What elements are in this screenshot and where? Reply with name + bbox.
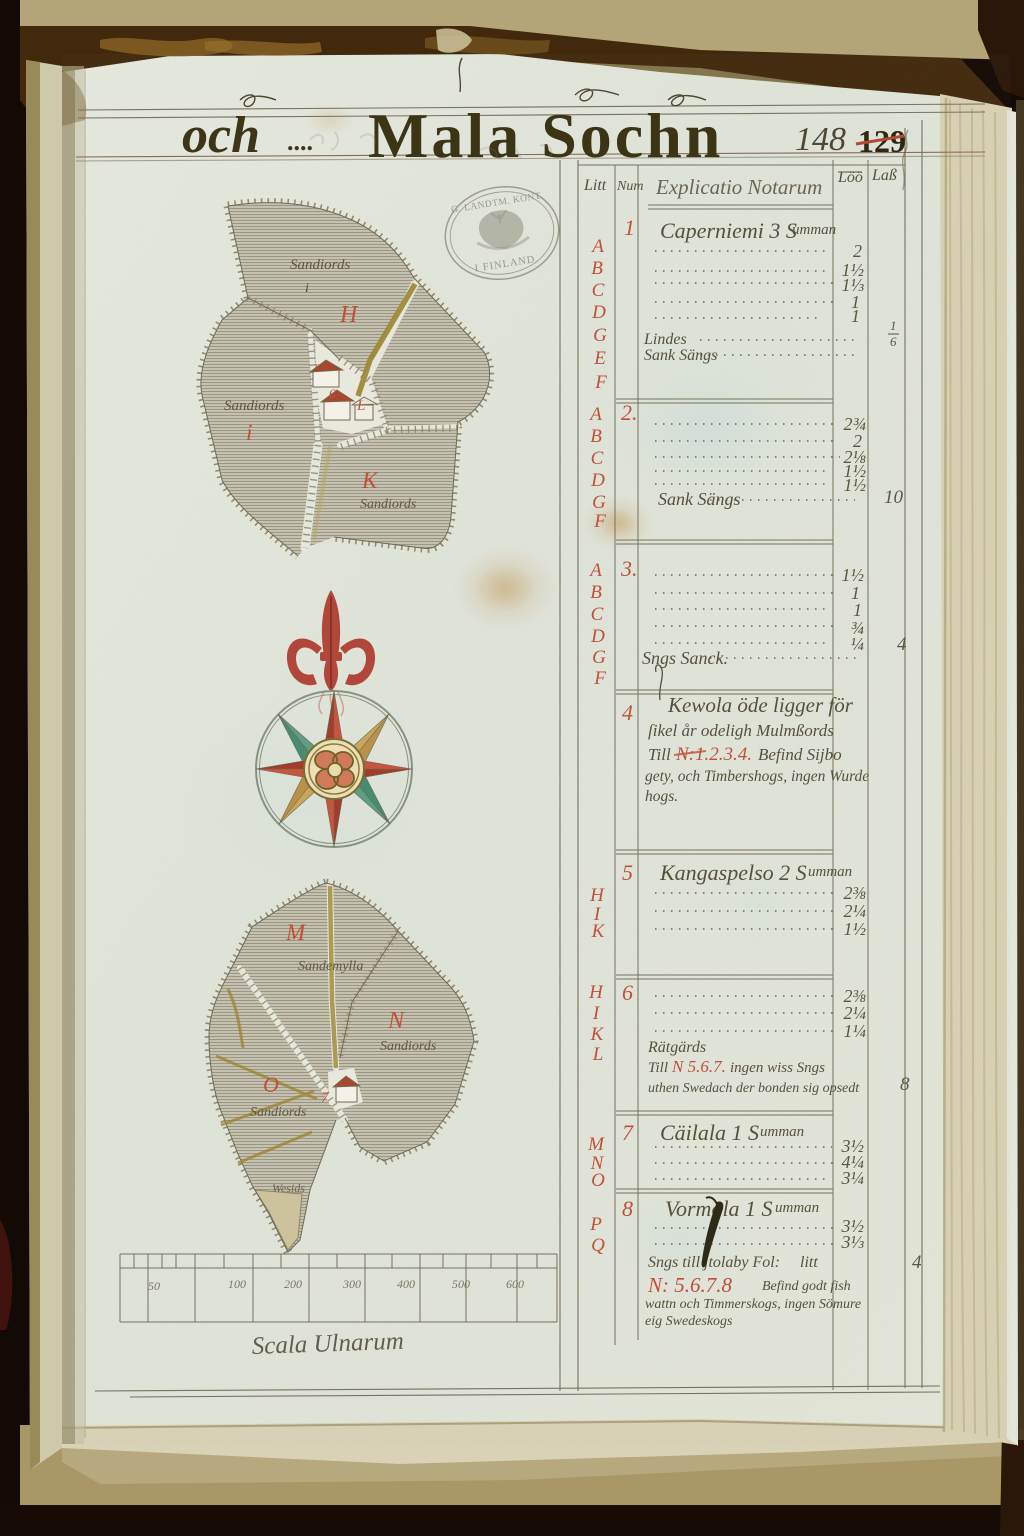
svg-text:Till: Till <box>648 1060 668 1076</box>
svg-text:E: E <box>593 348 606 369</box>
svg-text:50: 50 <box>148 1279 160 1293</box>
svg-text:1: 1 <box>853 600 862 620</box>
svg-text:N: 5.6.7.8: N: 5.6.7.8 <box>647 1273 733 1297</box>
svg-text:A: A <box>588 404 602 425</box>
svg-text:G: G <box>592 492 606 513</box>
svg-text:Befind Sijbo: Befind Sijbo <box>758 745 842 764</box>
svg-text:Sandiords: Sandiords <box>290 257 350 273</box>
svg-text:148: 148 <box>795 121 846 158</box>
svg-text:Sank Sängs: Sank Sängs <box>644 347 717 364</box>
svg-text:A: A <box>588 560 602 581</box>
svg-text:B: B <box>591 258 603 279</box>
svg-text:F: F <box>593 511 606 532</box>
svg-text:Lindes: Lindes <box>643 331 687 348</box>
svg-text:Sandiords: Sandiords <box>250 1105 307 1120</box>
svg-text:O: O <box>591 1170 605 1191</box>
svg-text:3¼: 3¼ <box>841 1168 865 1188</box>
svg-text:1: 1 <box>624 215 635 240</box>
svg-text:Kangaspelso 2 S: Kangaspelso 2 S <box>659 860 807 885</box>
svg-text:6: 6 <box>622 980 633 1005</box>
svg-text:K: K <box>590 1024 605 1045</box>
svg-text:F: F <box>593 668 606 689</box>
svg-text:2.: 2. <box>621 400 638 425</box>
svg-text:5: 5 <box>622 860 633 885</box>
svg-text:Num: Num <box>616 179 643 194</box>
svg-text:Wesids: Wesids <box>272 1181 305 1195</box>
svg-text:C: C <box>592 280 605 301</box>
svg-text:umman: umman <box>760 1124 804 1140</box>
svg-text:....: .... <box>287 127 313 156</box>
svg-text:Sandiords: Sandiords <box>224 398 284 414</box>
svg-text:Scala Ulnarum: Scala Ulnarum <box>251 1328 404 1360</box>
svg-text:A: A <box>590 236 604 257</box>
svg-text:4: 4 <box>622 700 633 725</box>
svg-text:1½: 1½ <box>844 475 867 495</box>
svg-text:Rätgärds: Rätgärds <box>647 1039 706 1056</box>
svg-text:Laß: Laß <box>871 167 897 184</box>
svg-text:6: 6 <box>329 386 336 401</box>
svg-text:s: s <box>315 361 319 372</box>
svg-text:Sngs Sanck.: Sngs Sanck. <box>642 648 728 668</box>
svg-text:N 5.6.7.: N 5.6.7. <box>671 1057 726 1076</box>
svg-text:B: B <box>590 582 602 603</box>
svg-text:Sandiords: Sandiords <box>360 497 417 512</box>
svg-text:Mala Sochn: Mala Sochn <box>368 100 723 171</box>
svg-text:300: 300 <box>342 1277 361 1291</box>
svg-text:2⅜: 2⅜ <box>844 883 867 903</box>
svg-text:Befind godt fish: Befind godt fish <box>762 1279 851 1294</box>
svg-text:Cäilala 1 S: Cäilala 1 S <box>660 1120 759 1145</box>
svg-text:500: 500 <box>452 1277 470 1291</box>
svg-text:Q: Q <box>591 1235 605 1256</box>
svg-text:Sandemylla: Sandemylla <box>298 959 363 974</box>
svg-text:1½: 1½ <box>844 919 867 939</box>
svg-text:1½: 1½ <box>842 565 865 585</box>
svg-text:eig Swedeskogs: eig Swedeskogs <box>645 1314 733 1329</box>
svg-text:100: 100 <box>228 1277 246 1291</box>
svg-text:4: 4 <box>897 634 907 655</box>
svg-text:2: 2 <box>853 241 862 261</box>
svg-text:C: C <box>591 604 604 625</box>
svg-text:Kewola öde ligger för: Kewola öde ligger för <box>667 693 854 717</box>
svg-text:Sank Sängs: Sank Sängs <box>658 489 741 509</box>
svg-text:umman: umman <box>792 222 836 238</box>
svg-text:P: P <box>589 1214 602 1235</box>
svg-text:i: i <box>246 420 252 445</box>
svg-text:M: M <box>285 920 307 945</box>
svg-text:K: K <box>591 921 606 942</box>
svg-text:K: K <box>361 468 379 493</box>
svg-text:200: 200 <box>284 1277 302 1291</box>
svg-text:H: H <box>589 885 605 906</box>
svg-text:¼: ¼ <box>851 634 865 654</box>
svg-text:Sngs till jtolaby Fol:: Sngs till jtolaby Fol: <box>648 1254 780 1271</box>
svg-text:2¼: 2¼ <box>844 1003 867 1023</box>
svg-text:Explicatio Notarum: Explicatio Notarum <box>655 175 822 199</box>
svg-text:O: O <box>263 1072 279 1097</box>
svg-text:Litt: Litt <box>583 177 607 194</box>
svg-text:1: 1 <box>890 318 897 333</box>
svg-text:7: 7 <box>622 1120 634 1145</box>
svg-text:umman: umman <box>775 1200 819 1216</box>
svg-text:hogs.: hogs. <box>645 788 678 805</box>
svg-text:Sandiords: Sandiords <box>380 1039 437 1054</box>
svg-text:uthen Swedach der bonden sig o: uthen Swedach der bonden sig opsedt <box>648 1081 860 1096</box>
svg-text:1¼: 1¼ <box>844 1021 867 1041</box>
svg-text:Caperniemi 3 S: Caperniemi 3 S <box>660 218 797 243</box>
svg-text:G: G <box>593 325 607 346</box>
svg-text:G: G <box>592 647 606 668</box>
svg-text:och: och <box>182 107 260 164</box>
svg-text:ſikel år odeligh Mulmßords: ſikel år odeligh Mulmßords <box>648 721 834 740</box>
svg-text:L: L <box>592 1044 604 1065</box>
svg-text:3.: 3. <box>620 556 638 581</box>
svg-text:400: 400 <box>397 1277 415 1291</box>
svg-text:C: C <box>591 448 604 469</box>
svg-text:H: H <box>588 982 604 1003</box>
svg-text:ingen wiss Sngs: ingen wiss Sngs <box>730 1060 825 1076</box>
svg-text:L: L <box>356 398 365 414</box>
svg-text:B: B <box>590 426 602 447</box>
svg-text:D: D <box>590 470 605 491</box>
svg-text:6: 6 <box>890 334 897 349</box>
svg-text:2¼: 2¼ <box>844 901 867 921</box>
svg-text:4: 4 <box>912 1252 922 1273</box>
svg-text:10: 10 <box>884 487 904 508</box>
svg-text:8: 8 <box>622 1196 633 1221</box>
svg-text:8: 8 <box>900 1074 910 1095</box>
svg-text:wattn och Timmerskogs, ingen S: wattn och Timmerskogs, ingen Sömure <box>645 1297 861 1312</box>
svg-text:N: N <box>387 1008 406 1034</box>
svg-text:Till: Till <box>648 745 671 764</box>
svg-text:i: i <box>305 281 309 296</box>
svg-text:600: 600 <box>506 1277 524 1291</box>
svg-text:D: D <box>590 626 605 647</box>
svg-text:D: D <box>591 302 606 323</box>
svg-text:1: 1 <box>851 306 860 326</box>
svg-text:F: F <box>594 372 607 393</box>
svg-text:litt: litt <box>800 1254 818 1271</box>
svg-text:N:1.2.3.4.: N:1.2.3.4. <box>675 744 752 765</box>
svg-text:umman: umman <box>808 864 852 880</box>
svg-text:3⅓: 3⅓ <box>841 1232 865 1252</box>
svg-text:M: M <box>587 1134 605 1155</box>
svg-text:H: H <box>339 302 359 328</box>
svg-text:gety, och Timbershogs, ingen W: gety, och Timbershogs, ingen Wurde <box>645 768 869 785</box>
